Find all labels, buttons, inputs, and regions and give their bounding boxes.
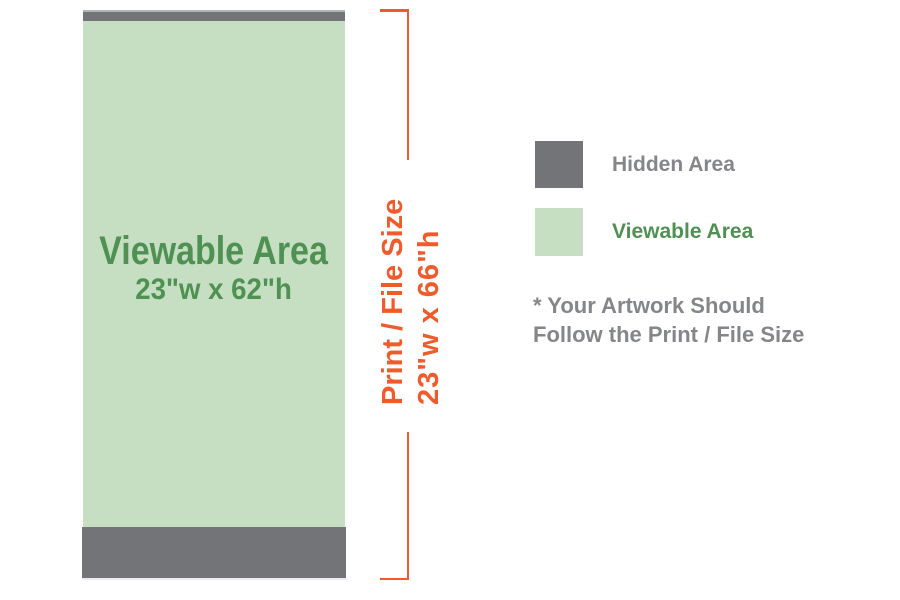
banner-hidden-area-top-bar [83, 10, 345, 21]
dimension-bracket-line-lower [407, 432, 410, 580]
banner-size-diagram: Viewable Area 23"w x 62"h Print / File S… [0, 0, 900, 600]
dimension-bracket-top-arm [380, 9, 409, 12]
viewable-area-dimensions: 23"w x 62"h [90, 272, 338, 308]
banner-hidden-area-bottom-bar [82, 527, 346, 580]
artwork-note-line1: * Your Artwork Should [533, 291, 804, 320]
hidden-area-label: Hidden Area [612, 153, 735, 177]
artwork-note-line2: Follow the Print / File Size [533, 320, 804, 349]
legend-item-hidden-area: Hidden Area [535, 141, 735, 188]
print-file-size-dimensions: 23"w x 66"h [411, 175, 447, 405]
artwork-note: * Your Artwork Should Follow the Print /… [533, 291, 804, 349]
dimension-bracket-bottom-arm [380, 578, 409, 581]
viewable-area-label: Viewable Area [612, 220, 753, 244]
print-file-size-rotated-text: Print / File Size 23"w x 66"h [375, 175, 447, 405]
viewable-area-text-block: Viewable Area 23"w x 62"h [79, 230, 348, 308]
legend-item-viewable-area: Viewable Area [535, 208, 753, 256]
banner-viewable-area: Viewable Area 23"w x 62"h [83, 21, 345, 527]
viewable-area-title: Viewable Area [100, 230, 329, 272]
viewable-area-swatch [535, 208, 583, 256]
dimension-bracket-line-upper [407, 9, 410, 160]
hidden-area-swatch [535, 141, 583, 188]
print-file-size-label: Print / File Size [375, 175, 411, 405]
